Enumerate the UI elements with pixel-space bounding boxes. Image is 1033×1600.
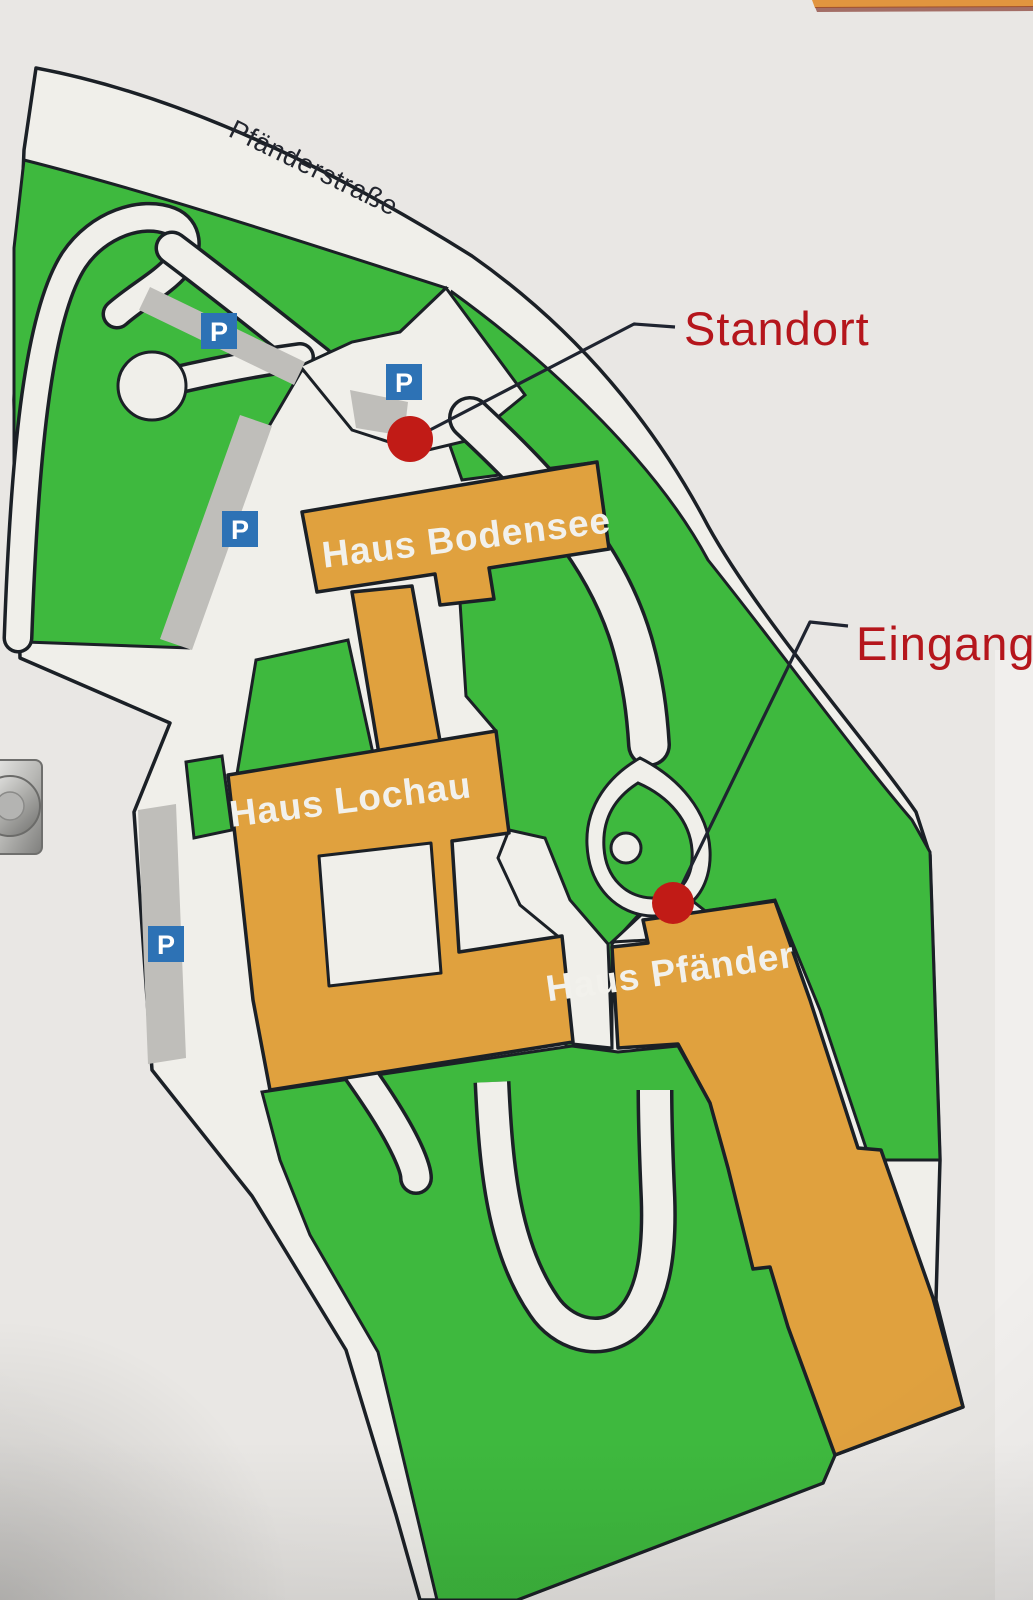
parking-badge: P (222, 511, 258, 547)
parking-p-icon: P (395, 368, 413, 398)
lawn-west-lochau (186, 756, 232, 838)
mounting-bolt (0, 760, 42, 854)
standort-label: Standort (684, 302, 870, 355)
parking-p-icon: P (210, 317, 228, 347)
site-map-svg: Haus Bodensee Haus Lochau Haus Pfänder P… (0, 0, 1033, 1600)
parking-badge: P (148, 926, 184, 962)
panel-edge-highlight (995, 650, 1033, 1600)
parking-badge: P (201, 313, 237, 349)
photographed-site-map-sign: { "sign": { "street": "Pfänderstraße" },… (0, 0, 1033, 1600)
standort-marker-dot (387, 416, 433, 462)
lochau-courtyard (319, 843, 441, 986)
eingang-marker-dot (652, 882, 694, 924)
parking-p-icon: P (157, 930, 175, 960)
turnaround-bulb (118, 352, 186, 420)
frame-strip-shadow (815, 6, 1033, 12)
parking-p-icon: P (231, 515, 249, 545)
eingang-label: Eingang (856, 617, 1033, 670)
sign-photo: Haus Bodensee Haus Lochau Haus Pfänder P… (0, 0, 1033, 1600)
parking-badge: P (386, 364, 422, 400)
